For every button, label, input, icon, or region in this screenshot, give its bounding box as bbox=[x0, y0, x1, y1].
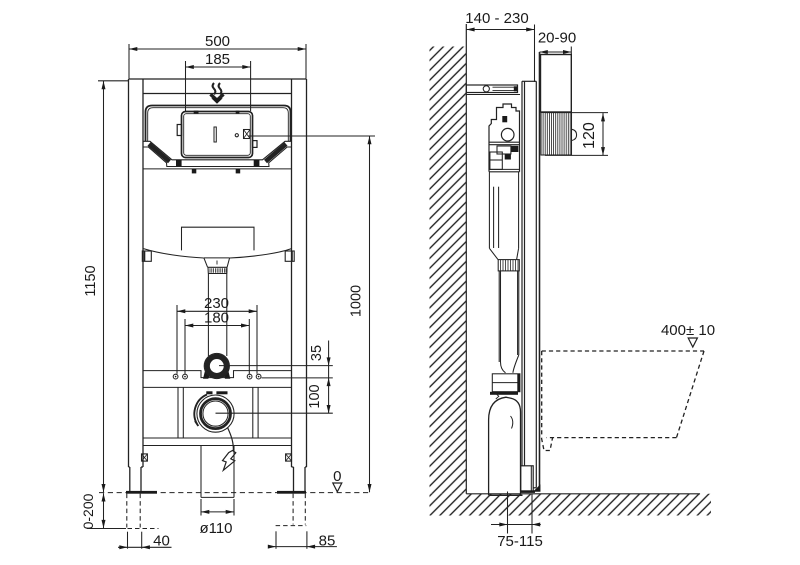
svg-text:40: 40 bbox=[153, 533, 170, 550]
svg-text:400± 10: 400± 10 bbox=[661, 322, 715, 339]
svg-text:ø110: ø110 bbox=[199, 520, 232, 537]
svg-text:1150: 1150 bbox=[83, 265, 99, 296]
svg-text:20-90: 20-90 bbox=[538, 30, 576, 47]
svg-text:140 - 230: 140 - 230 bbox=[465, 10, 528, 27]
svg-text:100: 100 bbox=[307, 384, 323, 408]
svg-text:185: 185 bbox=[205, 51, 230, 68]
svg-text:120: 120 bbox=[581, 122, 598, 149]
svg-text:35: 35 bbox=[309, 345, 325, 361]
svg-text:75-115: 75-115 bbox=[497, 533, 543, 550]
svg-text:85: 85 bbox=[319, 533, 336, 550]
svg-text:0-200: 0-200 bbox=[80, 493, 96, 529]
svg-text:1000: 1000 bbox=[349, 285, 365, 317]
svg-text:500: 500 bbox=[205, 33, 230, 50]
svg-text:180: 180 bbox=[204, 309, 229, 326]
